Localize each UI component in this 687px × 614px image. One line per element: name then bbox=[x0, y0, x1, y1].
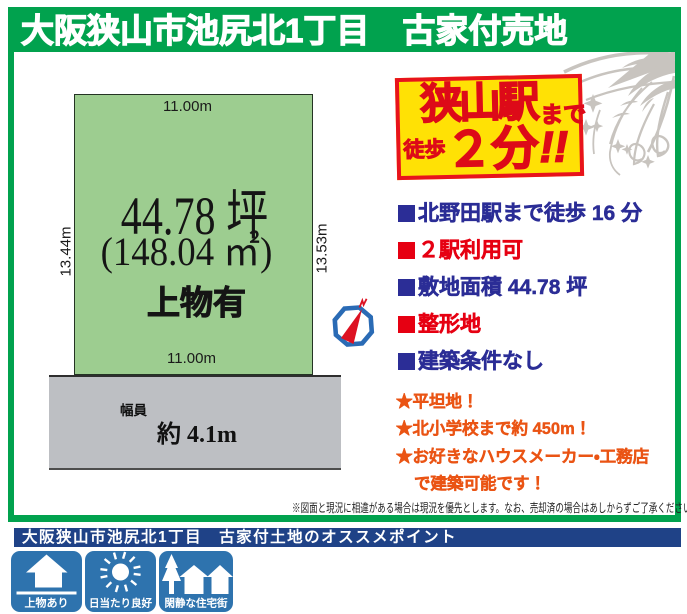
svg-text:日当たり良好: 日当たり良好 bbox=[89, 597, 152, 610]
svg-text:上物あり: 上物あり bbox=[25, 596, 69, 610]
svg-text:閑静な住宅街: 閑静な住宅街 bbox=[165, 597, 228, 610]
